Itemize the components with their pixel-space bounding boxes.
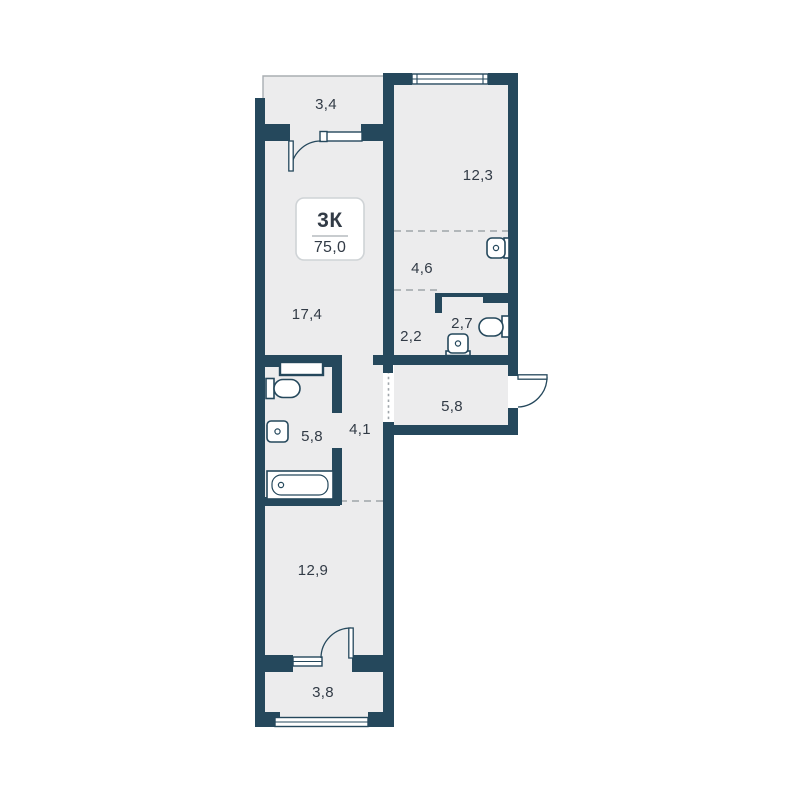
badge-type-label: 3К [317, 209, 343, 232]
room-label-corridor: 4,6 [411, 260, 433, 277]
window-balcony-top-icon [320, 132, 362, 142]
room-label-wc: 2,7 [451, 315, 473, 332]
floor-plan-page: 3,4 12,3 4,6 2,2 2,7 17,4 5,8 4,1 5,8 12… [0, 0, 800, 800]
room-label-bathroom: 5,8 [301, 428, 323, 445]
toilet-bathroom-icon [266, 379, 300, 399]
window-bedroom2-icon [293, 657, 322, 666]
room-label-balcony-bottom: 3,8 [312, 684, 334, 701]
sink-corridor-icon [487, 238, 509, 258]
sink-bathroom-icon [267, 421, 288, 442]
apartment-badge: 3К 75,0 [296, 198, 364, 260]
room-label-living-room: 17,4 [292, 306, 322, 323]
room-label-wc-lobby: 2,2 [400, 328, 422, 345]
vent-shaft [280, 362, 323, 375]
toilet-wc-icon [479, 316, 509, 337]
floor-plan: 3,4 12,3 4,6 2,2 2,7 17,4 5,8 4,1 5,8 12… [0, 0, 800, 800]
door-entrance-icon [518, 375, 547, 407]
window-balcony-bottom-icon [275, 718, 368, 727]
room-label-bedroom: 12,3 [463, 167, 493, 184]
sink-wc-icon [446, 334, 470, 356]
window-bedroom-icon [412, 74, 488, 84]
room-label-bedroom-2: 12,9 [298, 562, 328, 579]
bathtub-icon [267, 471, 333, 499]
badge-total-area: 75,0 [314, 239, 346, 256]
room-label-balcony-top: 3,4 [315, 96, 337, 113]
room-label-entry-hall: 5,8 [441, 398, 463, 415]
room-label-hallway: 4,1 [349, 421, 371, 438]
